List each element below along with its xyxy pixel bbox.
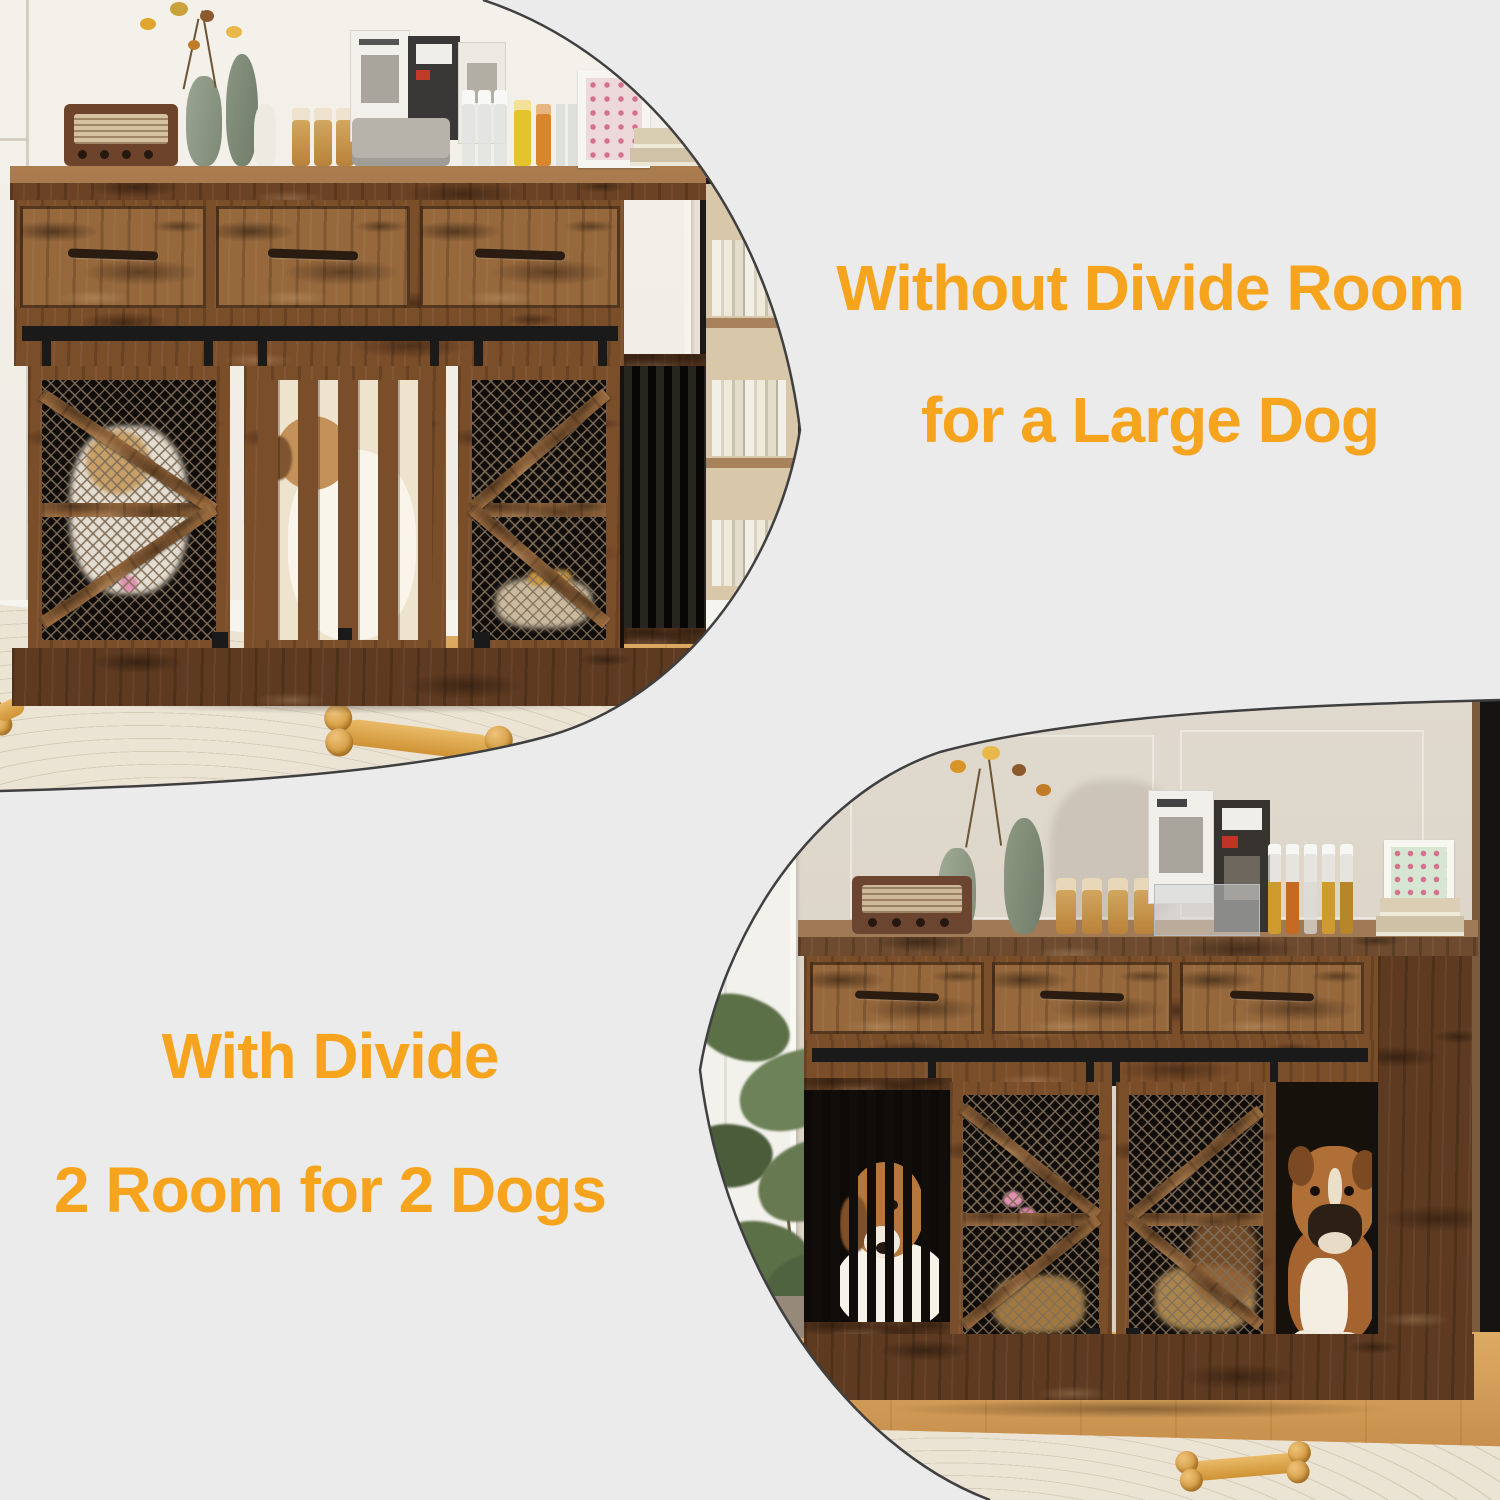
drawer — [992, 962, 1172, 1034]
bookshelf-shelf — [706, 318, 802, 328]
clear-organizer — [1154, 884, 1260, 936]
amber-cup — [1108, 878, 1128, 934]
rail-strap — [474, 336, 483, 368]
box-red-tag — [416, 70, 430, 80]
books-on-shelf — [712, 520, 772, 586]
drawer-handle — [1040, 991, 1124, 1002]
flower-head — [200, 10, 214, 22]
radio-knob — [916, 918, 925, 927]
bookshelf-shelf — [706, 458, 802, 468]
radio-knob — [100, 150, 109, 159]
drawer — [420, 206, 620, 308]
radio-knob — [122, 150, 131, 159]
radio-knob — [868, 918, 877, 927]
flower-stem — [201, 10, 217, 87]
wood-slats — [258, 380, 432, 640]
radio-speaker — [74, 114, 168, 144]
flower-head — [950, 760, 966, 773]
boxer-ear — [1288, 1146, 1314, 1186]
box-title-line — [359, 39, 399, 45]
oil-bottle — [1268, 844, 1281, 934]
oil-bottle — [1322, 844, 1335, 934]
barn-door-left — [28, 366, 230, 654]
drawer-handle — [855, 991, 939, 1002]
drawer-handle — [1230, 991, 1314, 1002]
boxer-jowl — [1318, 1232, 1352, 1254]
caption-bottom-line1: With Divide — [25, 1024, 635, 1088]
rail-strap — [204, 336, 213, 368]
open-compartment — [1276, 1082, 1378, 1358]
flower-stem — [183, 19, 200, 90]
dog-photo-print — [361, 55, 399, 103]
oil-bottle — [1304, 844, 1317, 934]
gray-storage-box — [352, 118, 450, 166]
flower-head — [170, 2, 188, 16]
flower-head — [1012, 764, 1026, 776]
orange-bottle — [536, 104, 551, 166]
box-label — [1222, 808, 1262, 830]
corner-metal-frame — [1372, 1086, 1378, 1362]
white-mini-vase — [276, 118, 292, 166]
product-collage: Without Divide Room for a Large Dog With… — [0, 0, 1500, 1500]
door-mid-rail — [963, 1213, 1099, 1226]
flower-stem — [988, 758, 1002, 845]
radio-knob — [892, 918, 901, 927]
drawer — [810, 962, 984, 1034]
door-interior — [258, 380, 432, 640]
books-on-shelf — [712, 380, 786, 456]
dried-flowers — [920, 740, 1070, 852]
dog-photo-print — [1159, 817, 1203, 873]
box-title-line — [1157, 799, 1187, 807]
crate-top-surface — [10, 166, 706, 183]
side-panel-bottom-rail — [624, 628, 706, 644]
door-mid-rail — [1129, 1213, 1263, 1226]
caption-bottom-line2: 2 Room for 2 Dogs — [25, 1158, 635, 1222]
stacked-books — [1380, 898, 1460, 916]
door-mid-rail — [42, 503, 216, 517]
radio-speaker — [862, 885, 962, 913]
flower-head — [188, 40, 200, 50]
boxer-eye — [1344, 1186, 1354, 1196]
amber-bottle — [314, 108, 332, 166]
barn-door-right — [458, 366, 620, 654]
glass-tube — [568, 104, 577, 166]
caption-top-line1: Without Divide Room — [805, 256, 1495, 320]
drawer — [216, 206, 410, 308]
radio-knob — [144, 150, 153, 159]
side-furniture-wood-edge — [1472, 700, 1480, 1348]
stacked-books — [634, 128, 698, 148]
drawer-handle — [475, 248, 565, 260]
radio-knob — [940, 918, 949, 927]
glass-tube — [556, 104, 565, 166]
door-hinge — [474, 632, 490, 648]
center-slat-door — [244, 366, 446, 654]
box-label — [416, 44, 452, 64]
barn-door-right — [1116, 1082, 1276, 1358]
yellow-bottle — [514, 100, 531, 166]
rail-strap — [42, 336, 51, 368]
rail-strap — [430, 336, 439, 368]
books-on-shelf — [712, 240, 776, 316]
door-mid-rail — [472, 503, 606, 517]
radio-knob — [78, 150, 87, 159]
flower-head — [140, 18, 156, 30]
crate-side-face — [1378, 956, 1472, 1360]
amber-cup — [1056, 878, 1076, 934]
drawer-handle — [68, 248, 158, 260]
drawer — [20, 206, 206, 308]
barn-door-rail — [22, 326, 618, 341]
flower-head — [1036, 784, 1051, 796]
vintage-radio — [64, 104, 178, 166]
door-latch — [338, 628, 352, 640]
side-panel-top-rail — [804, 1078, 952, 1090]
rail-strap — [258, 336, 267, 368]
stacked-books — [630, 148, 700, 166]
drawer — [1180, 962, 1364, 1034]
barn-door-left — [950, 1082, 1112, 1358]
side-bars-panel — [624, 366, 706, 628]
crate-base — [804, 1334, 1474, 1400]
flower-head — [226, 26, 242, 38]
oil-bottle — [1286, 844, 1299, 934]
caption-top-line2: for a Large Dog — [805, 388, 1495, 452]
boxer-eye — [1310, 1186, 1320, 1196]
side-panel-top-rail — [624, 354, 706, 366]
side-bars-panel — [804, 1090, 952, 1322]
drawer-handle — [268, 248, 358, 260]
rail-strap — [598, 336, 607, 368]
flower-head — [982, 746, 1000, 760]
crate-base — [12, 648, 710, 706]
amber-bottle — [292, 108, 310, 166]
green-vase-tall — [1004, 818, 1044, 934]
spray-bottle — [494, 90, 507, 166]
white-mini-vase — [254, 104, 276, 166]
boxer-blaze — [1328, 1168, 1342, 1208]
spray-bottle — [462, 90, 475, 166]
crate-top-edge — [798, 937, 1478, 956]
vintage-radio — [852, 876, 972, 934]
dried-flowers — [130, 0, 270, 92]
flower-stem — [965, 768, 981, 847]
spray-bottle — [478, 90, 491, 166]
door-hinge — [212, 632, 228, 648]
cage-bars-overlay — [804, 1090, 952, 1322]
stacked-books — [1376, 916, 1464, 936]
wainscot-rail — [0, 138, 28, 141]
box-red-tag — [1222, 836, 1238, 848]
black-shelf-edge — [1480, 700, 1500, 1350]
amber-cup — [1082, 878, 1102, 934]
crate-top-edge — [10, 183, 706, 200]
oil-bottle — [1340, 844, 1353, 934]
